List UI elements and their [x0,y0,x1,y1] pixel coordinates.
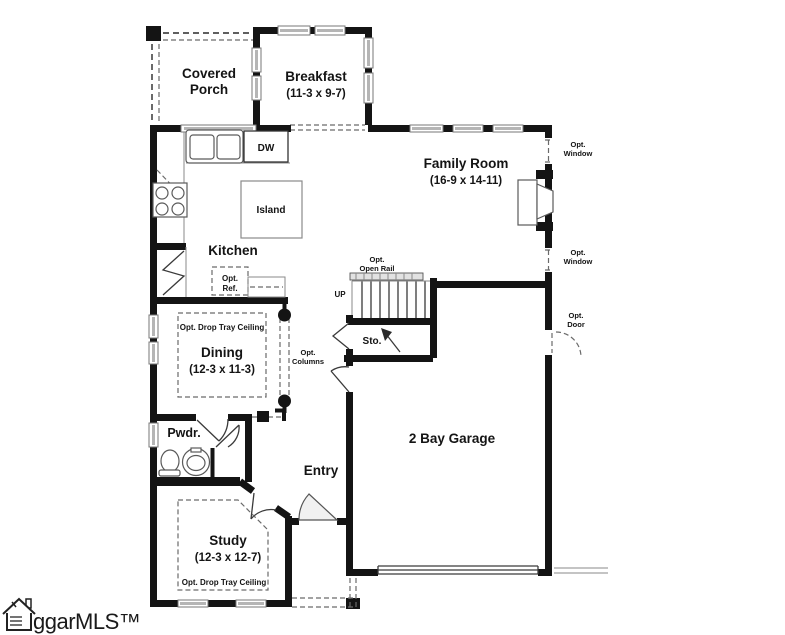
powder-sink-icon [183,448,210,476]
window [364,73,373,103]
room-label-dining: Dining [201,345,243,360]
window [315,26,345,35]
powder-room [150,414,252,482]
storage-label: Sto. [363,336,382,347]
window [178,600,208,607]
room-label-entry: Entry [304,463,339,478]
opt-door-label-1: Opt. [569,311,584,320]
floor-plan: Covered Porch Breakfast (11-3 x 9-7) Fam… [0,0,785,635]
opt-window-marker [545,140,552,162]
column-icon [278,309,291,322]
window [149,315,158,338]
cooktop-icon [153,183,187,217]
dining-colonnade [178,298,291,422]
front-door [299,494,337,520]
opt-ref-label-2: Ref. [222,284,237,293]
mls-house-icon [3,599,35,630]
stairs [331,273,434,576]
room-label-covered-porch-2: Porch [190,82,228,97]
opt-door-label-2: Door [567,320,585,329]
island-label: Island [257,205,286,216]
opt-open-rail-label-2: Open Rail [359,264,394,273]
study-ceiling-note: Opt. Drop Tray Ceiling [182,578,267,587]
opt-window-label-top-1: Opt. [571,140,586,149]
opt-open-rail-label-1: Opt. [370,255,385,264]
room-label-kitchen: Kitchen [208,243,258,258]
window [278,26,310,35]
closet-door [216,425,239,447]
opt-window-label-bottom-1: Opt. [571,248,586,257]
pantry-bifold-door [163,251,184,295]
opt-window-marker [545,250,552,270]
window [410,125,443,132]
room-label-powder: Pwdr. [167,426,200,440]
opt-columns-label-2: Columns [292,357,324,366]
mls-logo: ggarMLS™ [3,599,140,634]
entry-elements [288,494,356,607]
room-label-study: Study [209,533,247,548]
room-label-family-room: Family Room [424,156,509,171]
room-label-covered-porch-1: Covered [182,66,236,81]
study-door [251,493,276,519]
kitchen-sink-icon [186,130,243,163]
window [252,48,261,72]
dining-ceiling-note: Opt. Drop Tray Ceiling [180,323,265,332]
garage-door-icon [378,566,538,574]
window [236,600,266,607]
hall-closet-door [331,367,349,392]
toilet-icon [159,450,180,476]
stair-direction-arrow [381,328,400,352]
window [252,76,261,100]
window [364,38,373,68]
floor-plan-page: Covered Porch Breakfast (11-3 x 9-7) Fam… [0,0,785,635]
room-label-breakfast: Breakfast [285,69,347,84]
opt-door-swing [552,332,581,357]
column-icon [257,411,269,422]
dishwasher-label: DW [258,143,275,154]
up-label: UP [334,290,346,299]
room-label-garage: 2 Bay Garage [409,431,496,446]
window [149,342,158,364]
porch-post [146,26,161,41]
opt-window-label-top-2: Window [564,149,593,158]
room-dims-family-room: (16-9 x 14-11) [430,175,502,187]
room-dims-dining: (12-3 x 11-3) [189,364,255,376]
mls-logo-text: ggarMLS™ [33,609,140,634]
column-icon [278,395,291,408]
window [493,125,523,132]
room-dims-study: (12-3 x 12-7) [195,552,262,564]
window [149,423,158,447]
room-dims-breakfast: (11-3 x 9-7) [286,88,346,100]
opt-ref-label-1: Opt. [222,274,238,283]
storage-door [333,323,349,349]
window [453,125,483,132]
opt-columns-label-1: Opt. [301,348,316,357]
opt-window-label-bottom-2: Window [564,257,593,266]
powder-door [197,419,228,441]
